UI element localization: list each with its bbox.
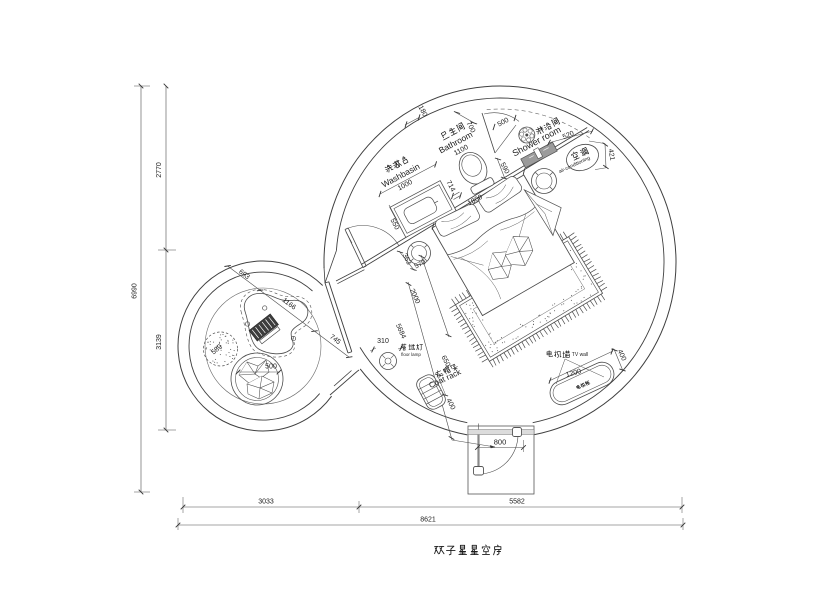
- svg-text:floor lamp: floor lamp: [401, 352, 421, 357]
- svg-text:3139: 3139: [156, 334, 163, 350]
- svg-text:310: 310: [377, 338, 389, 345]
- svg-text:2770: 2770: [156, 162, 163, 178]
- svg-text:6990: 6990: [132, 283, 139, 299]
- svg-text:800: 800: [494, 438, 507, 447]
- svg-text:500: 500: [265, 364, 277, 371]
- svg-text:TV wall: TV wall: [572, 352, 588, 358]
- svg-text:3033: 3033: [258, 499, 274, 506]
- svg-text:5582: 5582: [509, 499, 525, 506]
- svg-text:8621: 8621: [420, 517, 436, 524]
